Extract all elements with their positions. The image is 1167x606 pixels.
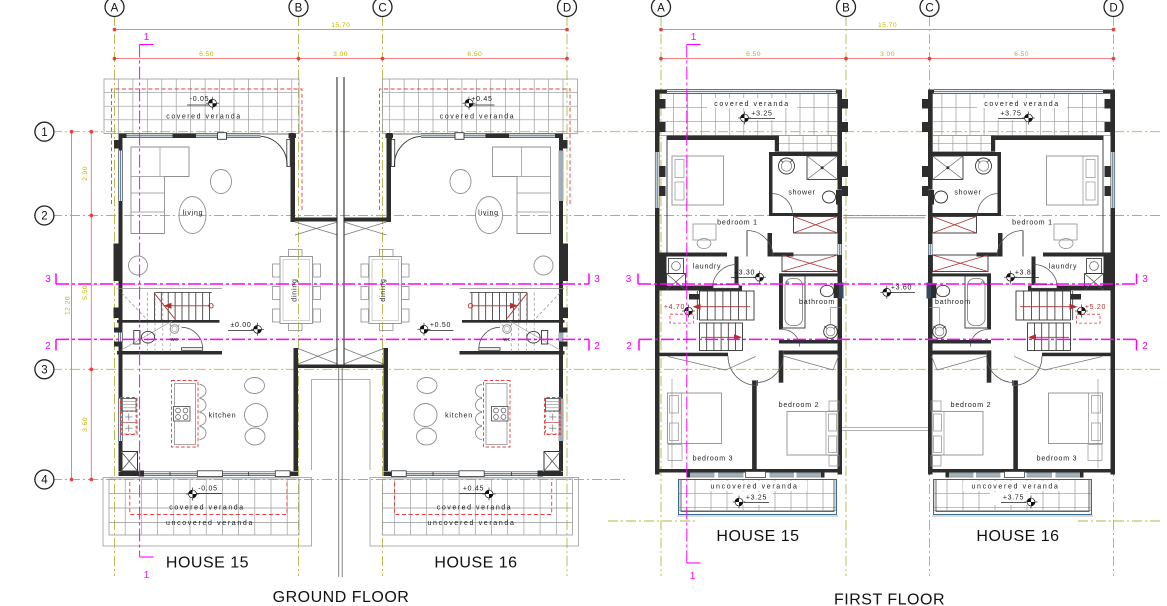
svg-text:3.00: 3.00	[333, 51, 348, 58]
svg-text:A: A	[657, 3, 665, 15]
svg-text:uncovered veranda: uncovered veranda	[428, 520, 516, 527]
svg-text:bathroom: bathroom	[799, 299, 835, 306]
svg-text:uncovered veranda: uncovered veranda	[711, 484, 799, 491]
svg-text:12.20: 12.20	[65, 296, 72, 315]
svg-text:15.70: 15.70	[878, 22, 897, 29]
svg-text:±0.00: ±0.00	[231, 322, 252, 329]
svg-text:2: 2	[1142, 341, 1148, 352]
svg-text:3: 3	[41, 365, 47, 377]
svg-text:C: C	[378, 3, 386, 15]
svg-text:+0.50: +0.50	[430, 322, 451, 329]
svg-text:shower: shower	[954, 190, 981, 197]
svg-text:laundry: laundry	[693, 264, 722, 271]
svg-text:bedroom 1: bedroom 1	[1012, 220, 1053, 227]
svg-text:6.50: 6.50	[467, 51, 482, 58]
svg-text:covered veranda: covered veranda	[984, 101, 1059, 108]
svg-text:15.70: 15.70	[331, 22, 350, 29]
svg-text:uncovered veranda: uncovered veranda	[972, 484, 1060, 491]
svg-text:D: D	[563, 3, 571, 15]
svg-text:2.90: 2.90	[82, 166, 89, 181]
svg-text:uncovered veranda: uncovered veranda	[166, 520, 254, 527]
svg-text:-0.05: -0.05	[198, 486, 217, 493]
svg-text:+0.45: +0.45	[471, 96, 492, 103]
svg-text:C: C	[925, 3, 933, 15]
svg-text:1: 1	[144, 32, 150, 43]
svg-text:bedroom 2: bedroom 2	[951, 402, 992, 409]
svg-text:+3.25: +3.25	[751, 111, 772, 118]
svg-text:laundry: laundry	[1049, 264, 1078, 271]
svg-text:covered veranda: covered veranda	[714, 101, 789, 108]
svg-text:3: 3	[45, 274, 51, 285]
svg-text:1: 1	[690, 571, 696, 582]
svg-text:kitchen: kitchen	[209, 413, 237, 420]
svg-text:A: A	[111, 3, 119, 15]
svg-text:+0.45: +0.45	[463, 486, 484, 493]
svg-text:HOUSE 15: HOUSE 15	[166, 555, 249, 572]
svg-text:3.60: 3.60	[82, 417, 89, 432]
svg-text:wc: wc	[502, 337, 511, 343]
svg-text:-0.05: -0.05	[190, 96, 209, 103]
svg-text:3: 3	[594, 274, 600, 285]
svg-text:1: 1	[144, 570, 150, 581]
svg-text:3.00: 3.00	[880, 51, 895, 58]
svg-text:wc: wc	[170, 337, 179, 343]
svg-text:HOUSE 16: HOUSE 16	[976, 528, 1059, 545]
svg-text:living: living	[478, 210, 499, 217]
svg-text:HOUSE 15: HOUSE 15	[716, 528, 799, 545]
svg-text:kitchen: kitchen	[445, 413, 473, 420]
svg-text:6.50: 6.50	[199, 51, 214, 58]
svg-text:covered veranda: covered veranda	[440, 114, 515, 121]
svg-text:bedroom 2: bedroom 2	[779, 402, 820, 409]
svg-text:6.50: 6.50	[1014, 51, 1029, 58]
svg-text:HOUSE 16: HOUSE 16	[434, 555, 517, 572]
svg-text:1: 1	[691, 32, 697, 43]
svg-text:shower: shower	[788, 190, 815, 197]
svg-text:2: 2	[626, 341, 632, 352]
svg-text:2: 2	[594, 341, 600, 352]
svg-text:+3.75: +3.75	[1000, 111, 1021, 118]
svg-text:B: B	[842, 3, 850, 15]
svg-text:dining: dining	[292, 278, 299, 301]
svg-text:2: 2	[45, 341, 51, 352]
svg-text:covered veranda: covered veranda	[166, 114, 241, 121]
svg-text:1: 1	[41, 127, 47, 139]
svg-text:covered veranda: covered veranda	[437, 505, 512, 512]
svg-text:dining: dining	[380, 278, 387, 301]
svg-text:bedroom 3: bedroom 3	[693, 456, 734, 463]
svg-text:B: B	[295, 3, 303, 15]
svg-text:+3.80: +3.80	[1015, 270, 1036, 277]
svg-text:covered veranda: covered veranda	[169, 505, 244, 512]
svg-text:5.50: 5.50	[82, 285, 89, 300]
svg-text:2: 2	[41, 211, 47, 223]
svg-text:bedroom 3: bedroom 3	[1037, 456, 1078, 463]
svg-text:living: living	[183, 210, 204, 217]
svg-text:6.50: 6.50	[746, 51, 761, 58]
svg-text:3: 3	[1142, 274, 1148, 285]
svg-text:bedroom 1: bedroom 1	[717, 220, 758, 227]
svg-text:+3.75: +3.75	[1003, 495, 1024, 502]
svg-text:+5.20: +5.20	[1085, 304, 1106, 311]
svg-text:3: 3	[626, 274, 632, 285]
svg-text:4: 4	[41, 475, 48, 487]
svg-text:+3.25: +3.25	[746, 495, 767, 502]
svg-text:GROUND FLOOR: GROUND FLOOR	[273, 589, 410, 606]
svg-text:bathroom: bathroom	[935, 299, 971, 306]
svg-text:D: D	[1109, 3, 1117, 15]
svg-text:+3.60: +3.60	[891, 285, 912, 292]
svg-text:FIRST FLOOR: FIRST FLOOR	[834, 592, 945, 606]
svg-text:+4.70: +4.70	[664, 304, 685, 311]
svg-text:+3.30: +3.30	[734, 270, 755, 277]
